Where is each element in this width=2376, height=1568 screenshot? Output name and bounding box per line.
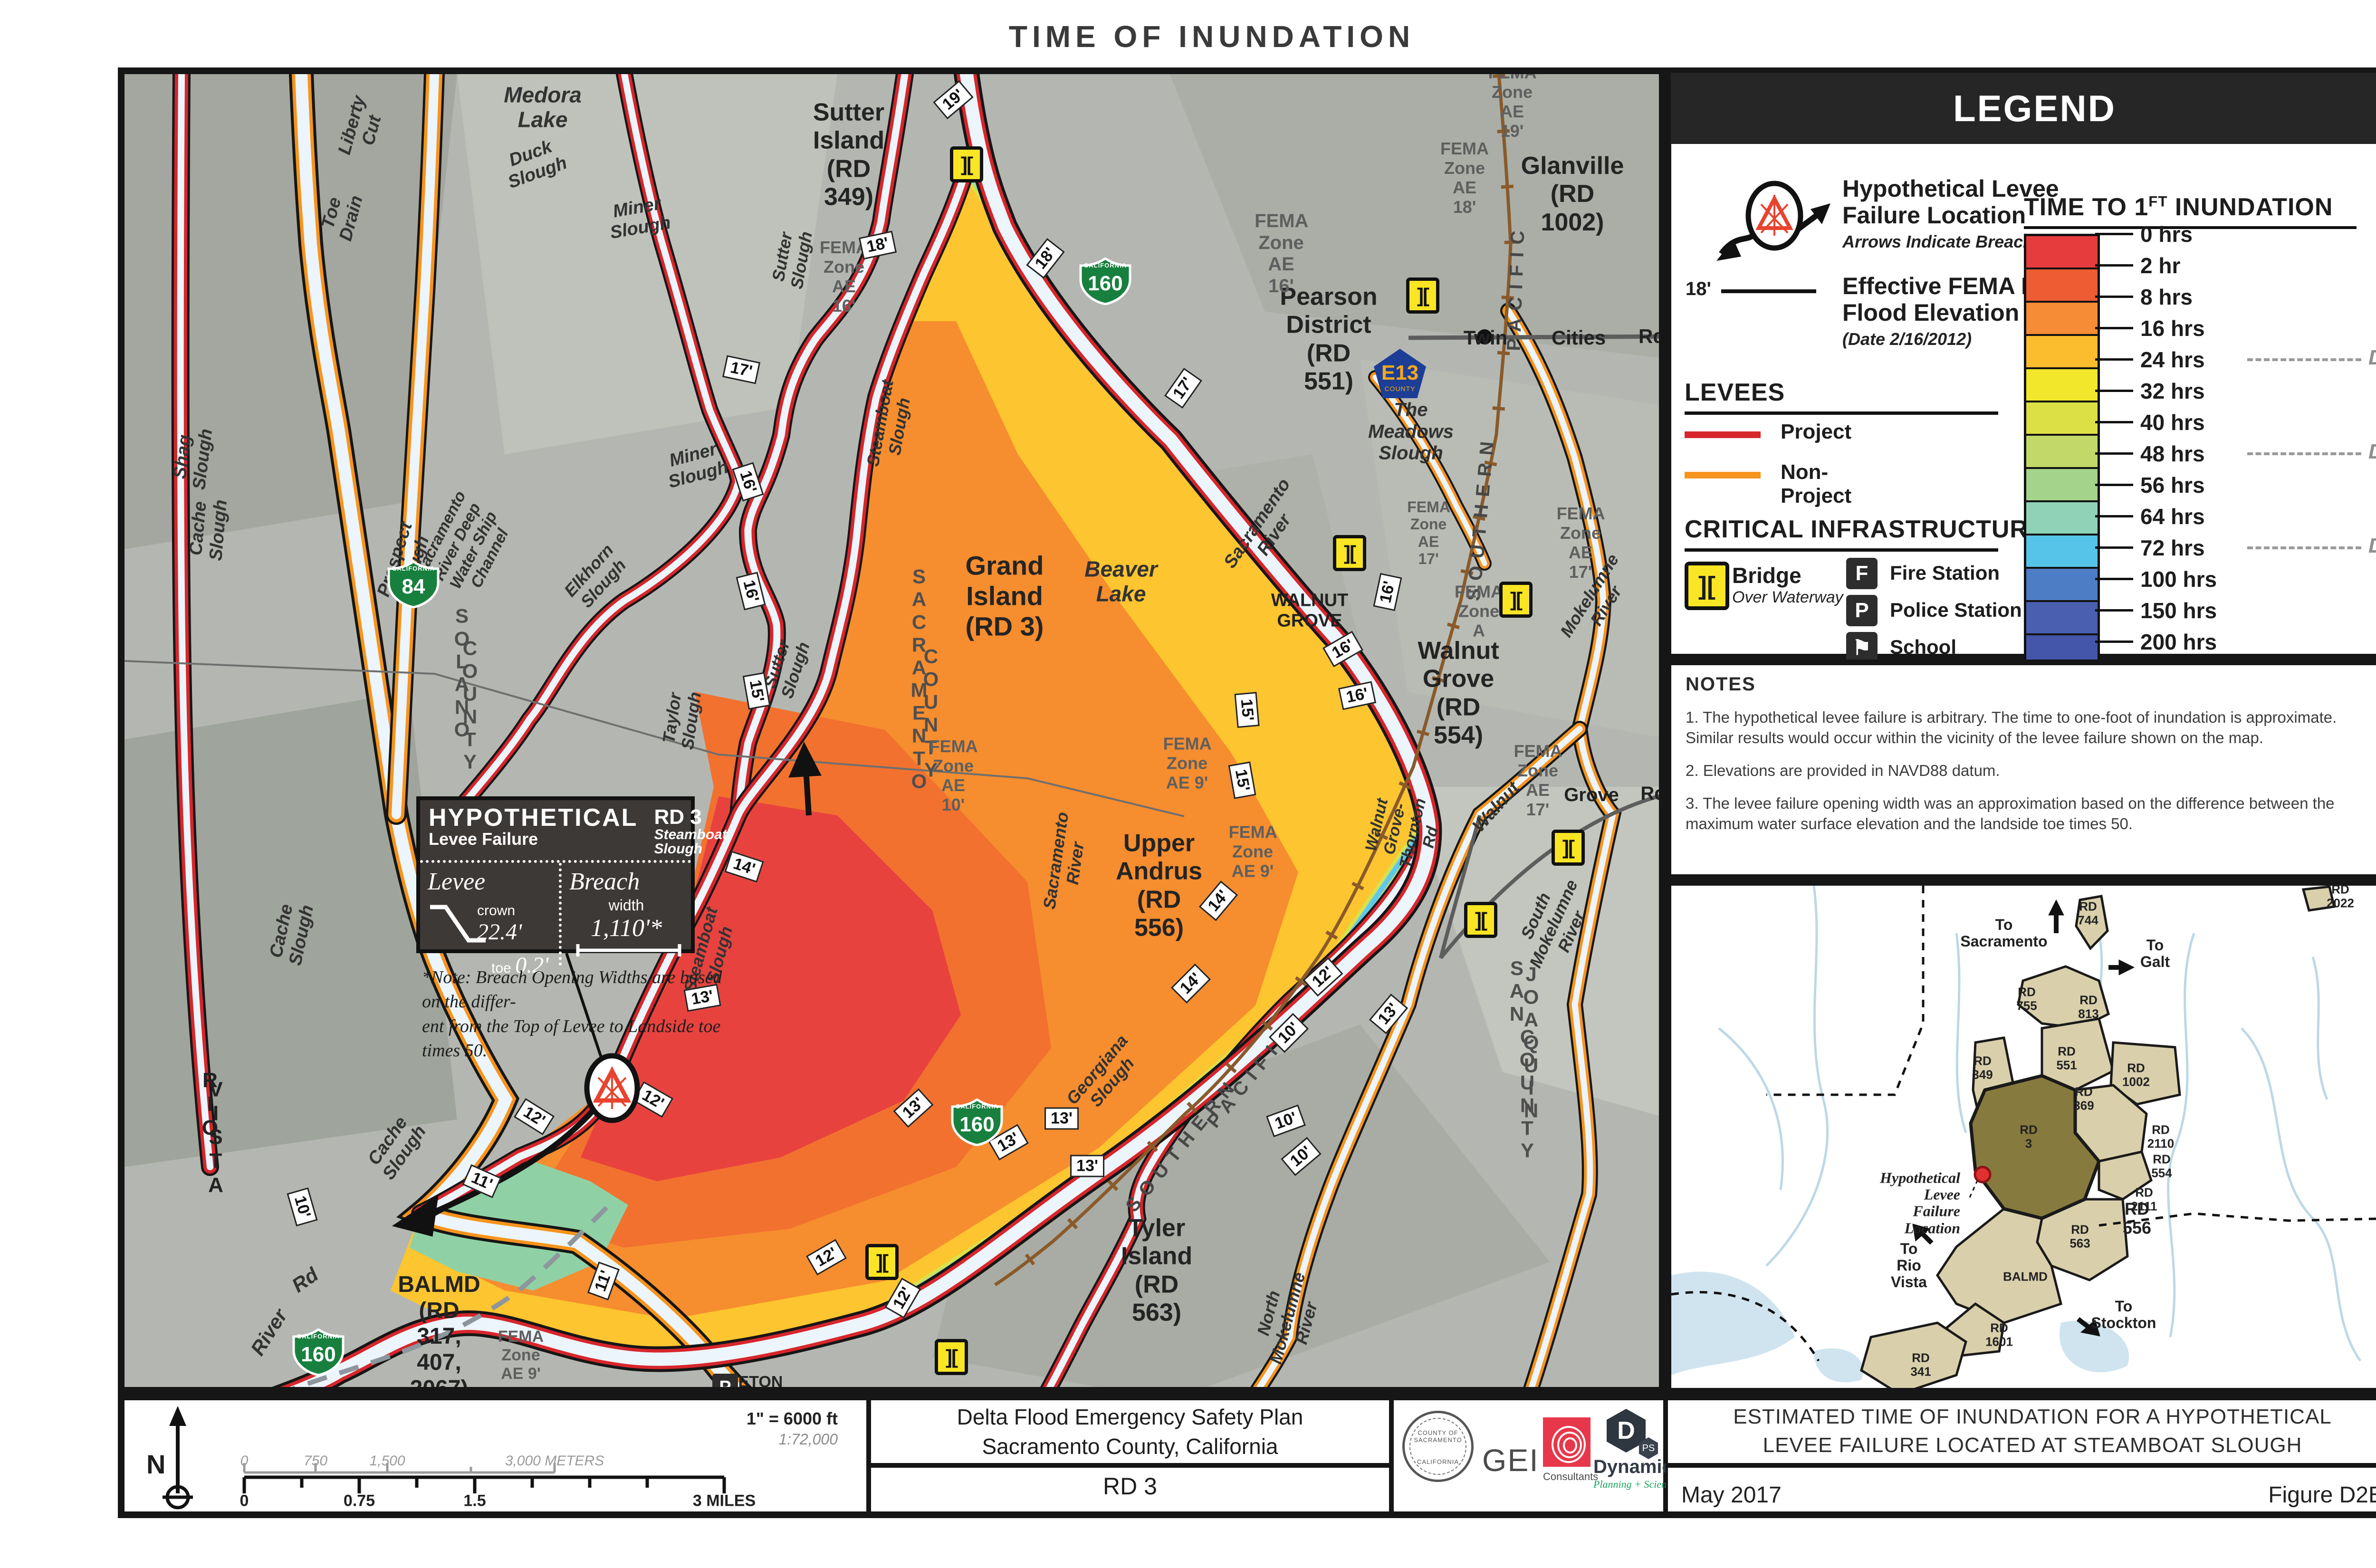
meters-tick-label: 750: [304, 1453, 327, 1469]
map-label: Shag Slough: [169, 425, 217, 491]
levee-failure-marker: [584, 1053, 640, 1123]
figure-number: Figure D2B: [2268, 1482, 2376, 1508]
page-title: TIME OF INUNDATION: [0, 19, 2376, 54]
ramp-color-cell: [2026, 469, 2098, 502]
inset-label: RD 1002: [2122, 1061, 2150, 1088]
breach-note: *Note: Breach Opening Widths are based o…: [422, 966, 736, 1063]
fema-elevation-marker: 13': [1070, 1155, 1104, 1177]
day-annotation: DAY 2: [2368, 440, 2376, 464]
ramp-color-cell: [2026, 502, 2098, 535]
note-item: 1. The hypothetical levee failure is arb…: [1686, 708, 2376, 748]
breach-symbol-icon: [1716, 163, 1835, 280]
legend-fema-line: [1721, 289, 1816, 293]
map-label: BALMD (RD 317, 407, 2067): [398, 1272, 480, 1394]
inset-label: RD 369: [2073, 1085, 2094, 1112]
figure-title: ESTIMATED TIME OF INUNDATION FOR A HYPOT…: [1668, 1405, 2376, 1429]
meters-tick-label: 1,500: [369, 1453, 405, 1469]
info-box-title: HYPOTHETICAL: [429, 807, 638, 829]
highway-shield-icon: CALIFORNIA 160: [950, 1099, 1004, 1146]
ramp-color-cell: [2026, 535, 2098, 569]
map-label: Rd: [1640, 783, 1666, 805]
levee-failure-info-box: HYPOTHETICAL Levee Failure RD 3 Steamboa…: [416, 796, 695, 953]
legend-bridge-label: Bridge: [1732, 563, 1843, 588]
ramp-color-cell: [2026, 336, 2098, 369]
fema-elevation-marker: 13': [1044, 1107, 1079, 1129]
map-label: V I S T A: [208, 1078, 223, 1197]
ramp-color-cell: [2026, 402, 2098, 436]
inset-label: RD 341: [1910, 1351, 1931, 1378]
ramp-color-cell: [2026, 569, 2098, 602]
inset-label: RD 744: [2078, 899, 2098, 927]
scale-ratio: 1" = 6000 ft: [747, 1409, 838, 1429]
miles-tick-label: 1.5: [463, 1492, 486, 1511]
ramp-color-cell: [2026, 303, 2098, 336]
bridge-icon: ][: [950, 146, 983, 182]
map-label: FEMA Zone AE 17': [1407, 498, 1449, 568]
highway-shield-icon: CALIFORNIA 84: [387, 561, 440, 608]
map-label: FEMA Zone AE 17': [1557, 504, 1605, 582]
notes-panel: NOTES 1. The hypothetical levee failure …: [1666, 660, 2376, 880]
meters-tick-label: 3,000 METERS: [505, 1453, 604, 1469]
ramp-color-cell: [2026, 236, 2098, 269]
map-label: Grove: [1564, 784, 1619, 806]
inset-label: RD 551: [2056, 1044, 2077, 1071]
inset-overview-map[interactable]: RD 2022RD 744To SacramentoTo GaltRD 755R…: [1666, 880, 2376, 1394]
figure-title-block: ESTIMATED TIME OF INUNDATION FOR A HYPOT…: [1666, 1394, 2376, 1518]
map-label: Walnut Grove (RD 554): [1418, 637, 1499, 749]
map-label: FEMA Zone AE 19': [1488, 67, 1536, 141]
map-label: FEMA Zone AE 9': [498, 1328, 544, 1383]
bridge-icon: ][: [1552, 830, 1585, 866]
map-label: C O U N T Y: [1520, 1025, 1535, 1162]
map-label: FEMA Zone AE 16': [1255, 210, 1308, 297]
map-label: C O U N T Y: [462, 637, 478, 773]
map-label: FEMA Zone A: [1455, 582, 1503, 640]
map-label: Tyler Island (RD 563): [1121, 1214, 1192, 1327]
inset-failure-dot: [1975, 1167, 1990, 1182]
map-label: Beaver Lake: [1084, 557, 1157, 607]
map-label: Sutter Island (RD 349): [813, 98, 884, 211]
bridge-icon: ][: [1499, 582, 1533, 618]
inset-label: RD 554: [2151, 1152, 2172, 1179]
map-label: Cities: [1552, 326, 1606, 349]
map-label: FEMA Zone AE 10': [929, 736, 977, 814]
legend-infra-header: CRITICAL INFRASTRUCTURE: [1685, 515, 1998, 552]
map-label: Rd: [1638, 325, 1665, 348]
map-label: Pearson District (RD 551): [1280, 283, 1377, 395]
main-map[interactable]: Sutter Island (RD 349)Grand Island (RD 3…: [118, 67, 1666, 1394]
map-label: Upper Andrus (RD 556): [1116, 829, 1202, 942]
inset-label: RD 813: [2078, 993, 2098, 1020]
meters-tick-label: 0: [240, 1453, 249, 1469]
inset-label: RD 349: [1972, 1054, 1993, 1081]
inset-label: RD 2110: [2147, 1123, 2174, 1150]
inset-label: BALMD: [2003, 1270, 2048, 1284]
map-label: Cache Slough: [185, 497, 232, 562]
bridge-icon: ][: [1333, 535, 1366, 571]
ramp-color-cell: [2026, 436, 2098, 469]
inset-label: RD 563: [2069, 1223, 2090, 1250]
map-label: Twin: [1464, 326, 1508, 349]
plan-subtitle: Sacramento County, California: [871, 1434, 1389, 1459]
figure-date: May 2017: [1681, 1482, 1782, 1508]
legend-levees-header: LEVEES: [1685, 378, 1998, 415]
map-label: FEMA Zone AE 18': [1440, 139, 1489, 217]
plan-title: Delta Flood Emergency Safety Plan: [871, 1404, 1389, 1430]
map-label: FEMA Zone AE 9': [1229, 822, 1277, 880]
bridge-icon: ][: [1406, 277, 1439, 314]
notes-list: 1. The hypothetical levee failure is arb…: [1686, 708, 2376, 834]
title-block: Delta Flood Emergency Safety Plan Sacram…: [869, 1394, 1391, 1518]
map-label: Medora Lake: [504, 83, 582, 133]
map-label: FEMA Zone AE 9': [1163, 734, 1211, 792]
day-annotation: DAY 3: [2368, 534, 2376, 558]
legend-bridge-icon: ][: [1685, 562, 1729, 610]
note-item: 2. Elevations are provided in NAVD88 dat…: [1686, 761, 2376, 781]
note-item: 3. The levee failure opening width was a…: [1686, 794, 2376, 834]
highway-shield-icon: CALIFORNIA 160: [1079, 258, 1132, 305]
map-label: Glanville (RD 1002): [1521, 152, 1624, 237]
twin-cities-road: [1408, 336, 1666, 338]
highway-shield-icon: CALIFORNIA 160: [292, 1329, 345, 1376]
map-label: S A N: [1510, 957, 1524, 1025]
inset-label: RD 755: [2016, 985, 2037, 1012]
map-label: PACIFIC: [1504, 223, 1530, 351]
miles-tick-label: 0.75: [344, 1492, 375, 1511]
inset-label: To Rio Vista: [1891, 1241, 1927, 1291]
logos-cell: COUNTY OF SACRAMENTO CALIFORNIA GEI Cons…: [1391, 1394, 1666, 1518]
map-label: The Meadows Slough: [1368, 400, 1454, 465]
scale-cell: N 07501,5003,000 METERS 00.751.53 MILES …: [118, 1394, 869, 1518]
legend-fema-tick: 18': [1686, 278, 1711, 300]
county-seal-logo: COUNTY OF SACRAMENTO CALIFORNIA: [1402, 1411, 1474, 1482]
map-label: Taylor Slough: [658, 688, 705, 751]
police-station-icon: P: [712, 1374, 738, 1394]
bridge-icon: ][: [935, 1339, 968, 1375]
inset-label: To Stockton: [2091, 1298, 2156, 1331]
district-id: RD 3: [871, 1472, 1389, 1500]
miles-tick-label: 0: [240, 1492, 249, 1511]
inset-label: RD 556: [2123, 1199, 2151, 1237]
inset-label: RD 3: [2020, 1123, 2038, 1150]
inset-label: RD 1601: [1985, 1321, 2013, 1348]
inset-label: To Galt: [2140, 937, 2170, 970]
ramp-color-cell: [2026, 369, 2098, 402]
fema-elevation-marker: 15': [1234, 692, 1259, 728]
scale-bars: [125, 1456, 738, 1513]
inset-label: RD 2022: [2327, 882, 2354, 909]
ramp-color-cell: [2026, 602, 2098, 635]
inset-label: Hypothetical Levee Failure Location: [1880, 1170, 1960, 1237]
legend-header: LEGEND: [1671, 73, 2376, 144]
map-label: FEMA Zone AE 17': [1514, 741, 1562, 819]
day-annotation: DAY 1: [2368, 346, 2376, 370]
map-label: Grand Island (RD 3): [966, 550, 1044, 641]
bridge-icon: ][: [865, 1244, 899, 1280]
inset-label: To Sacramento: [1960, 917, 2047, 950]
inundation-color-ramp: [2024, 234, 2100, 669]
bridge-icon: ][: [1464, 902, 1497, 938]
legend-panel: LEGEND Hypothetical Levee Failure Locati…: [1666, 67, 2376, 660]
miles-tick-label: 3 MILES: [693, 1492, 756, 1511]
notes-header: NOTES: [1686, 674, 2376, 695]
map-label: WALNUT GROVE: [1271, 591, 1349, 632]
ramp-color-cell: [2026, 269, 2098, 303]
scale-ratio-rf: 1:72,000: [778, 1431, 838, 1448]
